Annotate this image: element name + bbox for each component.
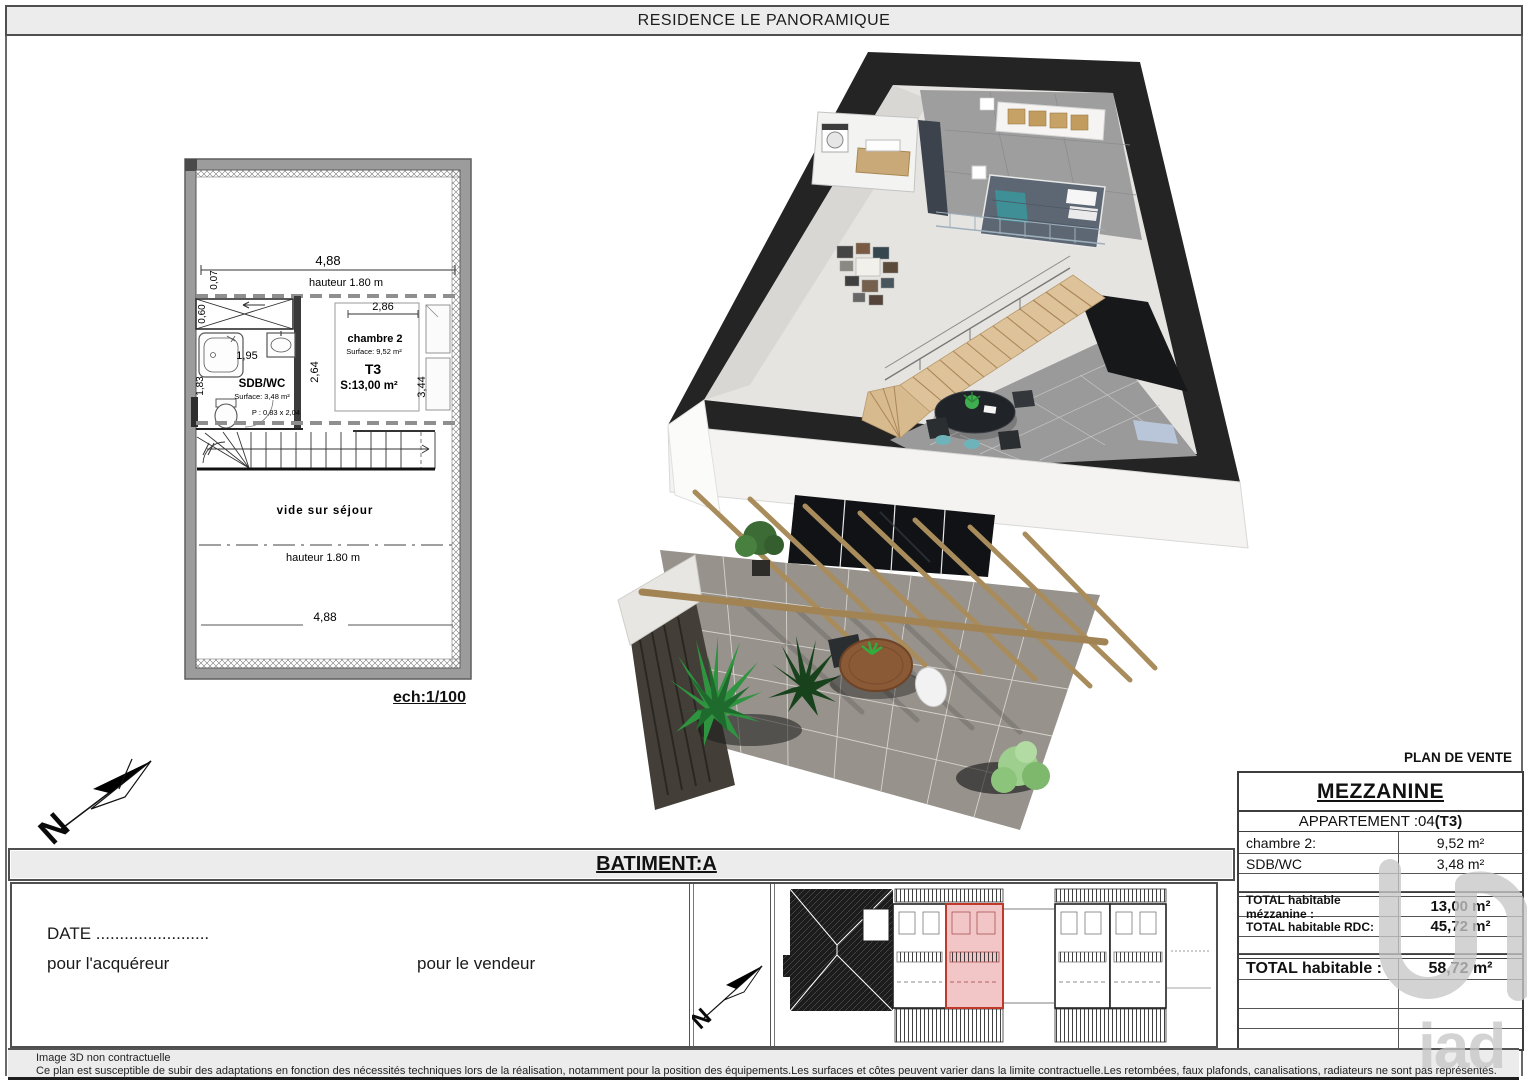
seller-signature-label: pour le vendeur [417, 954, 535, 974]
bathtub-drain [211, 353, 216, 358]
table-row-empty [1239, 1029, 1522, 1049]
vanity [856, 148, 910, 176]
keyplan-roof [783, 889, 893, 1011]
apartment-number: APPARTEMENT :04 [1299, 813, 1435, 830]
keyplan-units [893, 904, 1211, 1008]
svg-text:Surface: 3,48 m²: Surface: 3,48 m² [234, 392, 290, 401]
closet-dressing [196, 299, 293, 329]
page-title: RESIDENCE LE PANORAMIQUE [638, 12, 891, 30]
svg-text:Surface: 9,52 m²: Surface: 9,52 m² [346, 347, 402, 356]
footer-line1: Image 3D non contractuelle [8, 1050, 1519, 1065]
svg-text:0,07: 0,07 [209, 270, 220, 290]
row-label: TOTAL habitable : [1239, 959, 1399, 979]
building-key-plan [775, 883, 1216, 1044]
render-3d [600, 40, 1260, 870]
table-row-total-rdc: TOTAL habitable RDC: 45,72 m² [1239, 917, 1522, 937]
svg-text:T3: T3 [365, 361, 382, 377]
svg-text:1,83: 1,83 [195, 376, 206, 396]
batiment-band: BATIMENT:A [8, 848, 1235, 881]
table-row-empty [1239, 874, 1522, 892]
svg-text:hauteur 1.80 m: hauteur 1.80 m [286, 552, 360, 564]
svg-text:P : 0,83 x 2,04: P : 0,83 x 2,04 [252, 408, 300, 417]
compass-north-label: N [35, 804, 77, 850]
table-row-empty [1239, 980, 1522, 1009]
sale-table: MEZZANINE APPARTEMENT :04 (T3) chambre 2… [1237, 771, 1524, 1051]
svg-text:S:13,00 m²: S:13,00 m² [340, 380, 398, 392]
closet-right-bottom [426, 358, 450, 410]
compass-main: N [35, 745, 170, 850]
plan-de-vente-header: PLAN DE VENTE [1312, 750, 1512, 765]
table-row-total-mezzanine: TOTAL habitable mézzanine : 13,00 m² [1239, 897, 1522, 917]
table-row: SDB/WC 3,48 m² [1239, 854, 1522, 874]
scale-label: ech:1/100 [372, 689, 487, 707]
plan-de-vente-page: RESIDENCE LE PANORAMIQUE 4,88 haut [0, 0, 1527, 1080]
compass-north-label: N [692, 1003, 717, 1034]
svg-text:chambre 2: chambre 2 [347, 333, 402, 345]
date-field[interactable]: DATE ........................ [47, 924, 209, 944]
svg-text:3,44: 3,44 [416, 376, 428, 397]
mezzanine-floor-plan: 4,88 hauteur 1.80 m 0,07 0,60 0,07 1,83 [183, 153, 475, 715]
row-value: 58,72 m² [1399, 959, 1522, 979]
row-label: TOTAL habitable RDC: [1239, 917, 1399, 936]
bedside-table [972, 166, 986, 179]
svg-text:SDB/WC: SDB/WC [239, 378, 286, 390]
chair [998, 430, 1021, 450]
table-row-empty [1239, 1009, 1522, 1029]
svg-text:0,60: 0,60 [197, 304, 208, 324]
row-value: 45,72 m² [1399, 917, 1522, 936]
footer-disclaimer: Image 3D non contractuelle Ce plan est s… [8, 1048, 1519, 1080]
svg-text:1,95: 1,95 [236, 350, 257, 362]
table-row-apartment: APPARTEMENT :04 (T3) [1239, 812, 1522, 832]
svg-text:vide sur séjour: vide sur séjour [277, 505, 374, 517]
level-title: MEZZANINE [1317, 780, 1444, 804]
row-value: 9,52 m² [1399, 832, 1522, 853]
apartment-type: (T3) [1435, 813, 1463, 830]
table-row-empty [1239, 937, 1522, 954]
svg-text:4,88: 4,88 [313, 610, 337, 624]
buyer-signature-label: pour l'acquéreur [47, 954, 169, 974]
row-label: TOTAL habitable mézzanine : [1239, 897, 1399, 916]
table-row-level: MEZZANINE [1239, 773, 1522, 812]
row-label: chambre 2: [1239, 832, 1399, 853]
table-row: chambre 2: 9,52 m² [1239, 832, 1522, 854]
svg-text:2,64: 2,64 [309, 361, 321, 382]
batiment-label: BATIMENT:A [596, 853, 717, 876]
svg-text:hauteur 1.80 m: hauteur 1.80 m [309, 277, 383, 289]
svg-text:4,88: 4,88 [315, 253, 340, 268]
compass-small: N [692, 952, 772, 1034]
footer-line2: Ce plan est susceptible de subir des ada… [8, 1065, 1519, 1078]
title-band: RESIDENCE LE PANORAMIQUE [5, 5, 1523, 36]
plan-corner-mark [185, 159, 197, 171]
row-label: SDB/WC [1239, 854, 1399, 873]
closet-right-top [426, 305, 450, 353]
row-value: 3,48 m² [1399, 854, 1522, 873]
table-row-grand-total: TOTAL habitable : 58,72 m² [1239, 959, 1522, 980]
chair [1012, 390, 1035, 408]
sink-3d [866, 140, 900, 151]
row-value: 13,00 m² [1399, 897, 1522, 916]
svg-text:2,86: 2,86 [372, 301, 393, 313]
